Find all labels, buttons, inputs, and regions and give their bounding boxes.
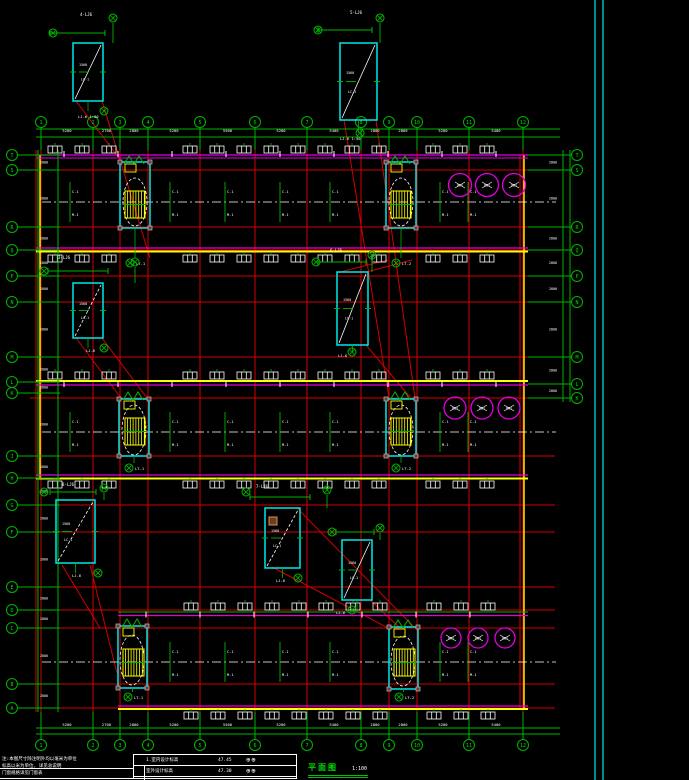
svg-text:F: F xyxy=(10,530,13,536)
svg-text:C-1: C-1 xyxy=(172,420,179,424)
svg-text:5200: 5200 xyxy=(276,722,286,727)
svg-text:2800: 2800 xyxy=(40,654,48,658)
svg-text:2: 2 xyxy=(91,120,94,126)
svg-text:2800: 2800 xyxy=(549,287,557,291)
svg-text:1560: 1560 xyxy=(62,522,70,526)
svg-text:LJ-6 1:50: LJ-6 1:50 xyxy=(78,114,99,119)
svg-text:M-1: M-1 xyxy=(470,213,477,217)
svg-text:1560: 1560 xyxy=(343,298,351,302)
svg-text:2800: 2800 xyxy=(40,517,48,521)
svg-text:11: 11 xyxy=(466,120,472,126)
title-block-notes: 注:本图尺寸除注明外均以毫米为单位 标高以米为单位, 详见总说明 门窗规格详见门… xyxy=(2,756,132,777)
svg-text:2800: 2800 xyxy=(549,161,557,165)
svg-text:M-1: M-1 xyxy=(282,213,289,217)
svg-text:1: 1 xyxy=(39,120,42,126)
svg-text:5200: 5200 xyxy=(276,128,286,133)
svg-text:881: 881 xyxy=(457,184,463,188)
svg-text:2800: 2800 xyxy=(40,368,48,372)
svg-text:LT-1: LT-1 xyxy=(134,695,144,700)
table-symbols: ⊕⊕ xyxy=(246,756,256,764)
svg-text:L: L xyxy=(575,382,578,388)
svg-text:9: 9 xyxy=(387,743,390,749)
stair-cores[interactable]: LT-1LT-2LT-1LT-2LT-1LT-2 xyxy=(116,156,420,701)
svg-text:M-1: M-1 xyxy=(332,673,339,677)
table-row: 室外设计标高 47.30 ⊕⊕ xyxy=(134,766,296,777)
svg-text:8: 8 xyxy=(359,120,362,126)
svg-text:5-LJ6: 5-LJ6 xyxy=(350,10,363,15)
svg-text:P: P xyxy=(575,274,578,280)
svg-text:12: 12 xyxy=(520,743,526,749)
svg-text:M-1: M-1 xyxy=(72,213,79,217)
svg-text:LJ-6 1:50: LJ-6 1:50 xyxy=(340,136,361,141)
svg-text:LT-1: LT-1 xyxy=(135,466,145,471)
svg-text:2800: 2800 xyxy=(129,128,139,133)
svg-text:2800: 2800 xyxy=(40,328,48,332)
svg-text:C-1: C-1 xyxy=(470,420,477,424)
svg-text:C-1: C-1 xyxy=(442,420,449,424)
svg-text:M-1: M-1 xyxy=(72,443,79,447)
svg-text:881: 881 xyxy=(511,184,517,188)
svg-text:10: 10 xyxy=(414,120,420,126)
table-label: 室外设计标高 xyxy=(134,768,218,774)
svg-text:C-1: C-1 xyxy=(470,650,477,654)
svg-text:1560: 1560 xyxy=(348,561,356,565)
svg-text:8: 8 xyxy=(359,743,362,749)
drawing-scale: 1:100 xyxy=(352,766,367,772)
svg-text:2800: 2800 xyxy=(40,465,48,469)
svg-text:4-LJ6: 4-LJ6 xyxy=(80,12,93,17)
svg-text:LT-2: LT-2 xyxy=(402,261,411,266)
svg-text:LJ-6: LJ-6 xyxy=(336,610,346,615)
cad-viewport: 1152005200222700270033280028004452005200… xyxy=(0,0,689,780)
svg-text:C-1: C-1 xyxy=(227,650,234,654)
building-strips[interactable] xyxy=(36,151,556,709)
svg-text:M-1: M-1 xyxy=(442,673,449,677)
svg-text:P: P xyxy=(10,274,13,280)
svg-text:3: 3 xyxy=(118,743,121,749)
svg-text:2800: 2800 xyxy=(549,261,557,265)
svg-text:N: N xyxy=(575,300,578,306)
svg-text:2800: 2800 xyxy=(40,287,48,291)
svg-text:6: 6 xyxy=(253,120,256,126)
svg-text:12: 12 xyxy=(520,120,526,126)
svg-text:5: 5 xyxy=(198,120,201,126)
svg-text:LJ-6: LJ-6 xyxy=(86,348,96,353)
svg-text:2800: 2800 xyxy=(40,161,48,165)
svg-text:M-1: M-1 xyxy=(332,213,339,217)
svg-text:C-1: C-1 xyxy=(227,190,234,194)
svg-text:C: C xyxy=(10,626,13,632)
svg-text:M-1: M-1 xyxy=(332,443,339,447)
svg-text:C-1: C-1 xyxy=(282,650,289,654)
svg-text:2800: 2800 xyxy=(40,261,48,265)
note-line: 注:本图尺寸除注明外均以毫米为单位 xyxy=(2,756,132,763)
svg-text:C-1: C-1 xyxy=(72,420,79,424)
sheet-border xyxy=(595,0,603,780)
svg-text:1560: 1560 xyxy=(271,529,279,533)
svg-text:2800: 2800 xyxy=(40,423,48,427)
svg-text:LC-1: LC-1 xyxy=(81,78,89,82)
svg-text:LC-1: LC-1 xyxy=(350,576,358,580)
svg-text:C-1: C-1 xyxy=(442,190,449,194)
svg-text:1560: 1560 xyxy=(79,302,87,306)
svg-text:2800: 2800 xyxy=(549,389,557,393)
svg-text:7: 7 xyxy=(305,120,308,126)
svg-text:2800: 2800 xyxy=(398,722,408,727)
svg-text:E: E xyxy=(10,585,13,591)
svg-text:T: T xyxy=(575,153,578,159)
svg-text:2800: 2800 xyxy=(40,386,48,390)
svg-text:B: B xyxy=(10,682,13,688)
svg-text:1560: 1560 xyxy=(346,71,354,75)
svg-text:LC-1: LC-1 xyxy=(273,544,281,548)
svg-text:5200: 5200 xyxy=(169,128,179,133)
svg-text:M-1: M-1 xyxy=(282,673,289,677)
svg-text:C-1: C-1 xyxy=(332,420,339,424)
svg-text:881: 881 xyxy=(484,184,490,188)
svg-text:2800: 2800 xyxy=(398,128,408,133)
svg-text:5400: 5400 xyxy=(329,722,339,727)
svg-text:Q: Q xyxy=(575,248,578,254)
elevation-table: 1.室内设计标高 47.45 ⊕⊕ 室外设计标高 47.30 ⊕⊕ ⊕⊕ xyxy=(133,754,297,779)
svg-text:R: R xyxy=(575,225,579,231)
svg-text:5500: 5500 xyxy=(223,128,233,133)
svg-text:M-1: M-1 xyxy=(227,213,234,217)
svg-text:2: 2 xyxy=(91,743,94,749)
svg-text:C-1: C-1 xyxy=(332,650,339,654)
detail-callouts[interactable]: 4-LJ61560LC-1LJ-6 1:505-LJ61560LC-1LJ-6 … xyxy=(40,10,384,615)
table-symbols: ⊕⊕ xyxy=(246,767,256,775)
svg-text:LJ-6: LJ-6 xyxy=(72,573,82,578)
svg-text:2800: 2800 xyxy=(549,197,557,201)
svg-text:C-1: C-1 xyxy=(470,190,477,194)
svg-text:D: D xyxy=(10,608,13,614)
svg-text:M-1: M-1 xyxy=(227,673,234,677)
svg-text:2800: 2800 xyxy=(40,617,48,621)
svg-text:5200: 5200 xyxy=(62,128,72,133)
svg-text:5400: 5400 xyxy=(329,128,339,133)
table-row: 1.室内设计标高 47.45 ⊕⊕ xyxy=(134,755,296,766)
svg-text:N: N xyxy=(10,300,13,306)
svg-text:LC-1: LC-1 xyxy=(345,316,353,320)
window-symbols[interactable] xyxy=(48,143,495,719)
svg-text:G: G xyxy=(10,503,13,509)
svg-text:Q: Q xyxy=(10,248,13,254)
svg-text:C-1: C-1 xyxy=(72,190,79,194)
title-underline xyxy=(308,775,368,776)
svg-text:7-LJ6: 7-LJ6 xyxy=(256,484,269,489)
svg-text:LC-1: LC-1 xyxy=(81,316,89,320)
svg-text:2800: 2800 xyxy=(549,237,557,241)
svg-text:LT-2: LT-2 xyxy=(402,466,411,471)
svg-text:2800: 2800 xyxy=(370,128,380,133)
svg-text:S: S xyxy=(575,168,578,174)
svg-text:2800: 2800 xyxy=(40,558,48,562)
svg-text:C-1: C-1 xyxy=(282,420,289,424)
svg-text:2700: 2700 xyxy=(102,128,112,133)
svg-text:K: K xyxy=(10,391,13,397)
svg-text:LC-1: LC-1 xyxy=(348,90,356,94)
grid-columns-green[interactable]: 1152005200222700270033280028004452005200… xyxy=(36,117,561,751)
svg-text:4: 4 xyxy=(146,743,149,749)
svg-text:4: 4 xyxy=(146,120,149,126)
svg-text:C-1: C-1 xyxy=(282,190,289,194)
svg-text:LT-2: LT-2 xyxy=(405,695,414,700)
svg-text:6-LJ6: 6-LJ6 xyxy=(330,248,343,253)
svg-text:K: K xyxy=(575,396,578,402)
notes-divider xyxy=(0,768,133,769)
drawing-title-text: 平面图 xyxy=(308,762,338,773)
note-line: 门窗规格详见门窗表 xyxy=(2,770,132,777)
svg-text:H: H xyxy=(10,476,13,482)
svg-text:2800: 2800 xyxy=(40,237,48,241)
svg-text:10: 10 xyxy=(414,743,420,749)
svg-text:5200: 5200 xyxy=(438,128,448,133)
table-divider xyxy=(144,765,145,780)
wall-lines-yellow[interactable] xyxy=(40,155,524,710)
svg-text:2800: 2800 xyxy=(129,722,139,727)
svg-text:1: 1 xyxy=(39,743,42,749)
svg-text:7: 7 xyxy=(305,743,308,749)
svg-text:M: M xyxy=(575,355,578,361)
svg-text:M-1: M-1 xyxy=(172,213,179,217)
svg-text:L: L xyxy=(10,380,13,386)
svg-text:M-1: M-1 xyxy=(442,213,449,217)
svg-text:C-1: C-1 xyxy=(332,190,339,194)
svg-text:11: 11 xyxy=(466,743,472,749)
svg-text:M-1: M-1 xyxy=(282,443,289,447)
svg-text:881: 881 xyxy=(452,407,458,411)
svg-text:5400: 5400 xyxy=(491,722,501,727)
svg-text:T: T xyxy=(10,153,13,159)
svg-text:5: 5 xyxy=(198,743,201,749)
svg-text:881: 881 xyxy=(475,637,481,641)
notes-divider xyxy=(0,778,133,779)
svg-text:C-1: C-1 xyxy=(442,650,449,654)
svg-text:J: J xyxy=(10,454,13,460)
svg-text:LJ-6: LJ-6 xyxy=(276,578,286,583)
table-value: 47.45 xyxy=(218,758,246,763)
svg-text:2700: 2700 xyxy=(102,722,112,727)
svg-text:881: 881 xyxy=(506,407,512,411)
svg-text:2800: 2800 xyxy=(40,197,48,201)
svg-text:M-1: M-1 xyxy=(470,443,477,447)
svg-text:5200: 5200 xyxy=(62,722,72,727)
svg-text:9: 9 xyxy=(387,120,390,126)
svg-text:LJ-6: LJ-6 xyxy=(338,353,348,358)
svg-text:LC-1: LC-1 xyxy=(64,538,72,542)
svg-text:S: S xyxy=(10,168,13,174)
svg-text:C-1: C-1 xyxy=(227,420,234,424)
svg-text:2800: 2800 xyxy=(549,369,557,373)
svg-text:881: 881 xyxy=(502,637,508,641)
svg-text:M-1: M-1 xyxy=(227,443,234,447)
svg-text:5200: 5200 xyxy=(169,722,179,727)
svg-text:2800: 2800 xyxy=(40,694,48,698)
svg-text:C-1: C-1 xyxy=(172,650,179,654)
svg-text:881: 881 xyxy=(479,407,485,411)
svg-text:3: 3 xyxy=(118,120,121,126)
svg-text:R: R xyxy=(10,225,14,231)
svg-text:M-1: M-1 xyxy=(442,443,449,447)
table-value: 47.30 xyxy=(218,769,246,774)
table-label: 1.室内设计标高 xyxy=(134,757,218,763)
svg-text:M: M xyxy=(10,355,13,361)
svg-text:M-1: M-1 xyxy=(470,673,477,677)
svg-text:5400: 5400 xyxy=(491,128,501,133)
svg-text:2800: 2800 xyxy=(549,328,557,332)
svg-text:A: A xyxy=(10,706,13,712)
svg-text:5200: 5200 xyxy=(438,722,448,727)
svg-text:2800: 2800 xyxy=(40,597,48,601)
svg-text:M-1: M-1 xyxy=(172,673,179,677)
svg-text:M-1: M-1 xyxy=(172,443,179,447)
drawing-title: 平面图1:100 注:1 做法详见说明 ⊕⊕ ⊕— xyxy=(308,755,398,780)
svg-text:2800: 2800 xyxy=(370,722,380,727)
equipment-circles[interactable]: 881881881881881881881881881 xyxy=(441,174,526,649)
svg-text:1560: 1560 xyxy=(79,63,87,67)
svg-text:8-LJ6: 8-LJ6 xyxy=(62,482,75,487)
svg-text:3-LJ6: 3-LJ6 xyxy=(58,255,71,260)
svg-text:6: 6 xyxy=(253,743,256,749)
svg-text:5500: 5500 xyxy=(223,722,233,727)
svg-text:881: 881 xyxy=(448,637,454,641)
title-underline xyxy=(308,777,368,778)
svg-text:C-1: C-1 xyxy=(172,190,179,194)
floor-plan-drawing[interactable]: 1152005200222700270033280028004452005200… xyxy=(0,0,689,780)
